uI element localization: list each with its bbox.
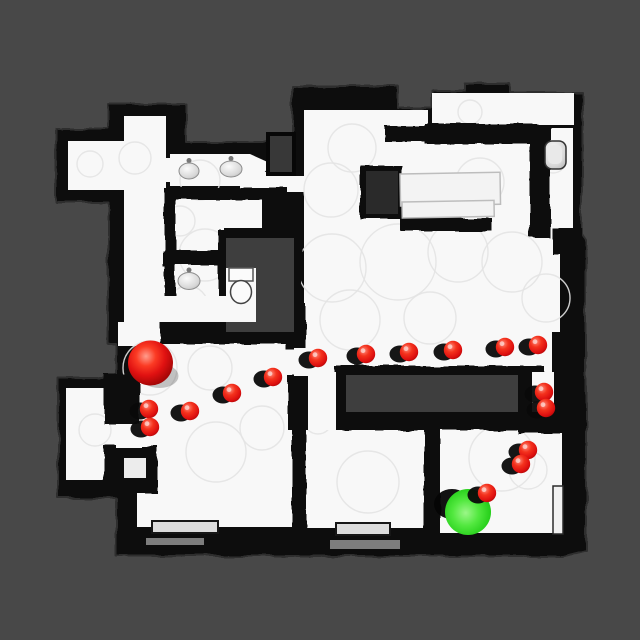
hole-closet [366, 171, 398, 214]
waypoint-marker [140, 400, 158, 418]
waypoint-marker [496, 338, 514, 356]
waypoint-marker [537, 399, 555, 417]
wall [162, 250, 226, 266]
waypoint-highlight [145, 421, 150, 426]
floor-top-right-strip [432, 93, 574, 125]
waypoint-highlight [404, 346, 409, 351]
waypoint-marker [529, 336, 547, 354]
door-leaf [553, 486, 563, 534]
wall [552, 228, 582, 254]
faucet-icon [187, 158, 192, 163]
waypoint-marker [512, 455, 530, 473]
floor-passage [308, 372, 336, 430]
waypoint-highlight [227, 387, 232, 392]
floor-streak [146, 538, 204, 545]
table [402, 200, 494, 218]
door-threshold [152, 521, 218, 533]
wall [424, 414, 440, 552]
floor-pocket [124, 458, 146, 478]
waypoint-marker [141, 418, 159, 436]
waypoint-highlight [268, 371, 273, 376]
floor-room [172, 196, 262, 228]
toilet-bowl-icon [231, 281, 252, 304]
wall [164, 190, 176, 298]
faucet-icon [187, 268, 192, 273]
waypoint-highlight [533, 339, 538, 344]
wall [292, 420, 306, 552]
floor-map-viewport [0, 0, 640, 640]
hole-middle-strip [346, 375, 518, 412]
wall-dashes [400, 218, 492, 231]
hole-corner [268, 134, 294, 174]
floor-streak [330, 540, 400, 549]
floor-map-render [0, 0, 640, 640]
waypoint-highlight [448, 344, 453, 349]
waypoint-highlight [144, 403, 149, 408]
wall [164, 188, 288, 200]
wall [425, 124, 538, 144]
waypoint-marker [357, 345, 375, 363]
toilet-tank-icon [229, 268, 253, 281]
waypoint-marker [444, 341, 462, 359]
start-marker [128, 341, 173, 386]
waypoint-marker [309, 349, 327, 367]
sink-icon [178, 273, 200, 290]
faucet-icon [229, 156, 234, 161]
door-threshold [336, 523, 390, 535]
waypoint-highlight [500, 341, 505, 346]
floor-door [162, 158, 172, 182]
waypoint-highlight [482, 487, 487, 492]
waypoint-highlight [313, 352, 318, 357]
sink-icon [179, 163, 199, 179]
waypoint-highlight [361, 348, 366, 353]
waypoint-marker [181, 402, 199, 420]
waypoint-highlight [539, 386, 544, 391]
waypoint-highlight [523, 444, 528, 449]
waypoint-marker [478, 484, 496, 502]
waypoint-highlight [516, 458, 521, 463]
wall-basin-inner [548, 145, 562, 164]
sink-icon [220, 161, 242, 177]
waypoint-highlight [541, 402, 546, 407]
waypoint-marker [264, 368, 282, 386]
waypoint-marker [535, 383, 553, 401]
waypoint-highlight [185, 405, 190, 410]
waypoint-marker [223, 384, 241, 402]
wall [385, 126, 432, 142]
waypoint-marker [400, 343, 418, 361]
